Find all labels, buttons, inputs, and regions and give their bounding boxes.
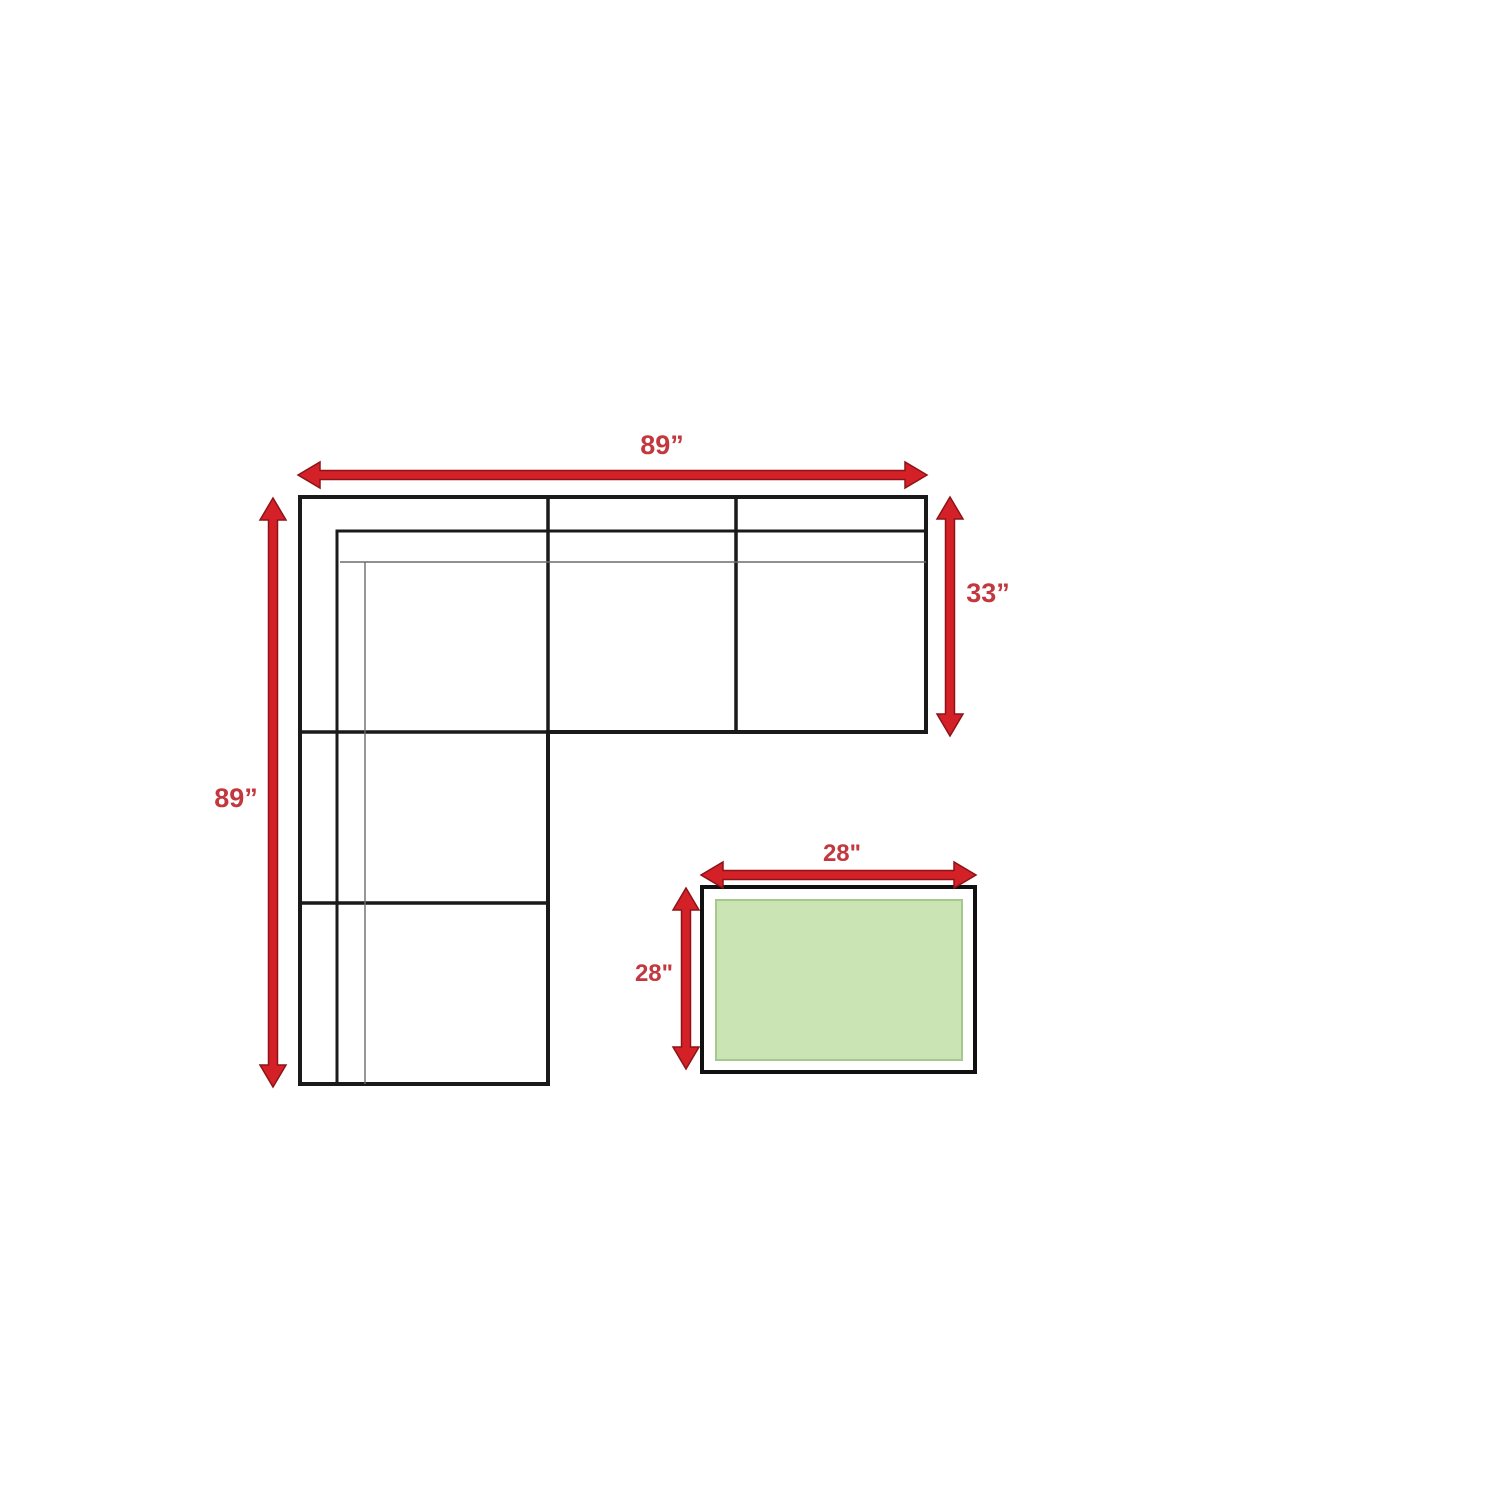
arrow-section-depth bbox=[937, 497, 963, 736]
dimension-label-section-depth: 33” bbox=[966, 578, 1010, 608]
dimension-label-table-depth: 28" bbox=[635, 960, 673, 987]
arrow-sofa-depth bbox=[260, 498, 286, 1087]
sofa-dimension-diagram-page: 89” 89” 33” 28" 28" bbox=[0, 0, 1500, 1500]
sectional-sofa-dimension-diagram: 89” 89” 33” 28" 28" bbox=[0, 0, 1500, 1500]
dimension-label-table-width: 28" bbox=[823, 840, 861, 867]
arrow-sofa-width bbox=[298, 462, 927, 488]
arrow-table-depth bbox=[673, 888, 699, 1069]
table-top-surface bbox=[716, 900, 962, 1060]
dimension-label-sofa-width: 89” bbox=[640, 430, 684, 460]
dimension-label-sofa-depth: 89” bbox=[214, 783, 258, 813]
table-plan bbox=[702, 887, 975, 1072]
